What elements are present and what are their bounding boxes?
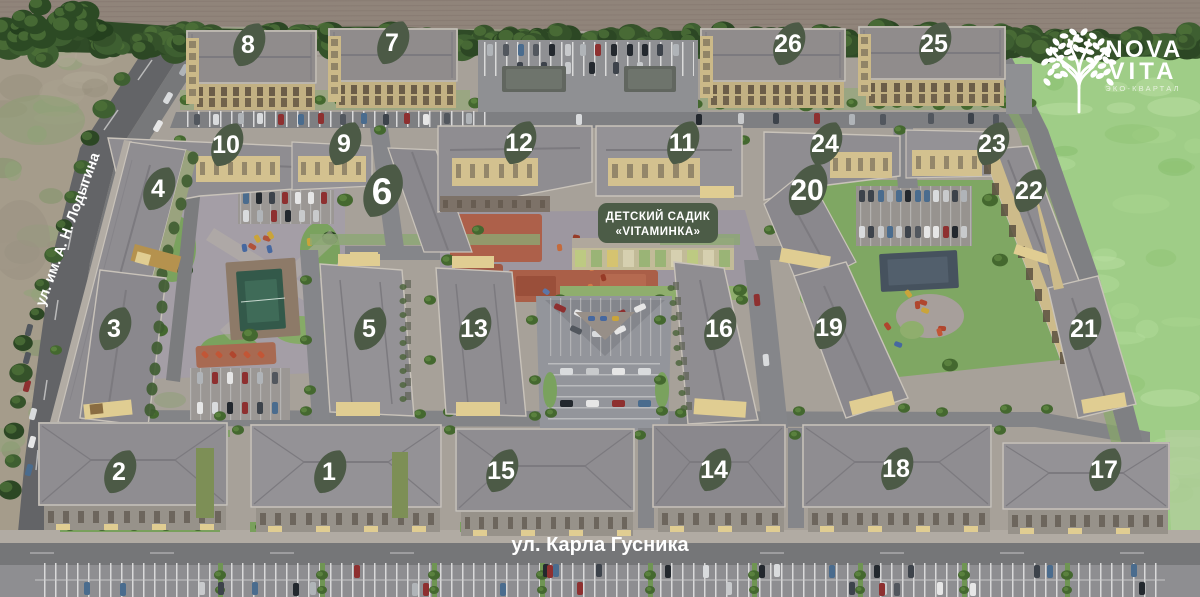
svg-text:«VITAМИНКА»: «VITAМИНКА»	[615, 226, 700, 238]
svg-text:25: 25	[920, 30, 948, 58]
svg-text:10: 10	[212, 131, 240, 159]
svg-text:17: 17	[1090, 456, 1118, 484]
svg-text:12: 12	[505, 129, 533, 157]
svg-text:19: 19	[815, 314, 843, 342]
svg-text:26: 26	[774, 30, 802, 58]
svg-text:9: 9	[337, 130, 351, 158]
svg-text:ул. Карла Гусника: ул. Карла Гусника	[511, 534, 689, 556]
svg-text:7: 7	[385, 29, 399, 57]
svg-text:21: 21	[1070, 315, 1098, 343]
svg-text:15: 15	[487, 457, 515, 485]
svg-text:18: 18	[882, 455, 910, 483]
svg-text:5: 5	[362, 315, 376, 343]
svg-text:8: 8	[241, 31, 255, 59]
svg-text:20: 20	[790, 174, 823, 207]
svg-text:1: 1	[322, 458, 336, 486]
svg-text:23: 23	[978, 130, 1006, 158]
svg-text:6: 6	[372, 171, 393, 212]
svg-text:22: 22	[1015, 177, 1043, 205]
svg-text:24: 24	[811, 130, 839, 158]
svg-text:3: 3	[107, 315, 121, 343]
svg-text:ЭКО-КВАРТАЛ: ЭКО-КВАРТАЛ	[1105, 84, 1180, 93]
svg-text:4: 4	[151, 175, 165, 203]
svg-text:14: 14	[700, 456, 728, 484]
svg-text:ДЕТСКИЙ САДИК: ДЕТСКИЙ САДИК	[606, 210, 711, 223]
svg-text:13: 13	[460, 315, 488, 343]
svg-text:2: 2	[112, 458, 126, 486]
svg-text:11: 11	[669, 129, 696, 157]
svg-text:16: 16	[705, 315, 733, 343]
svg-text:VITA: VITA	[1109, 58, 1178, 85]
